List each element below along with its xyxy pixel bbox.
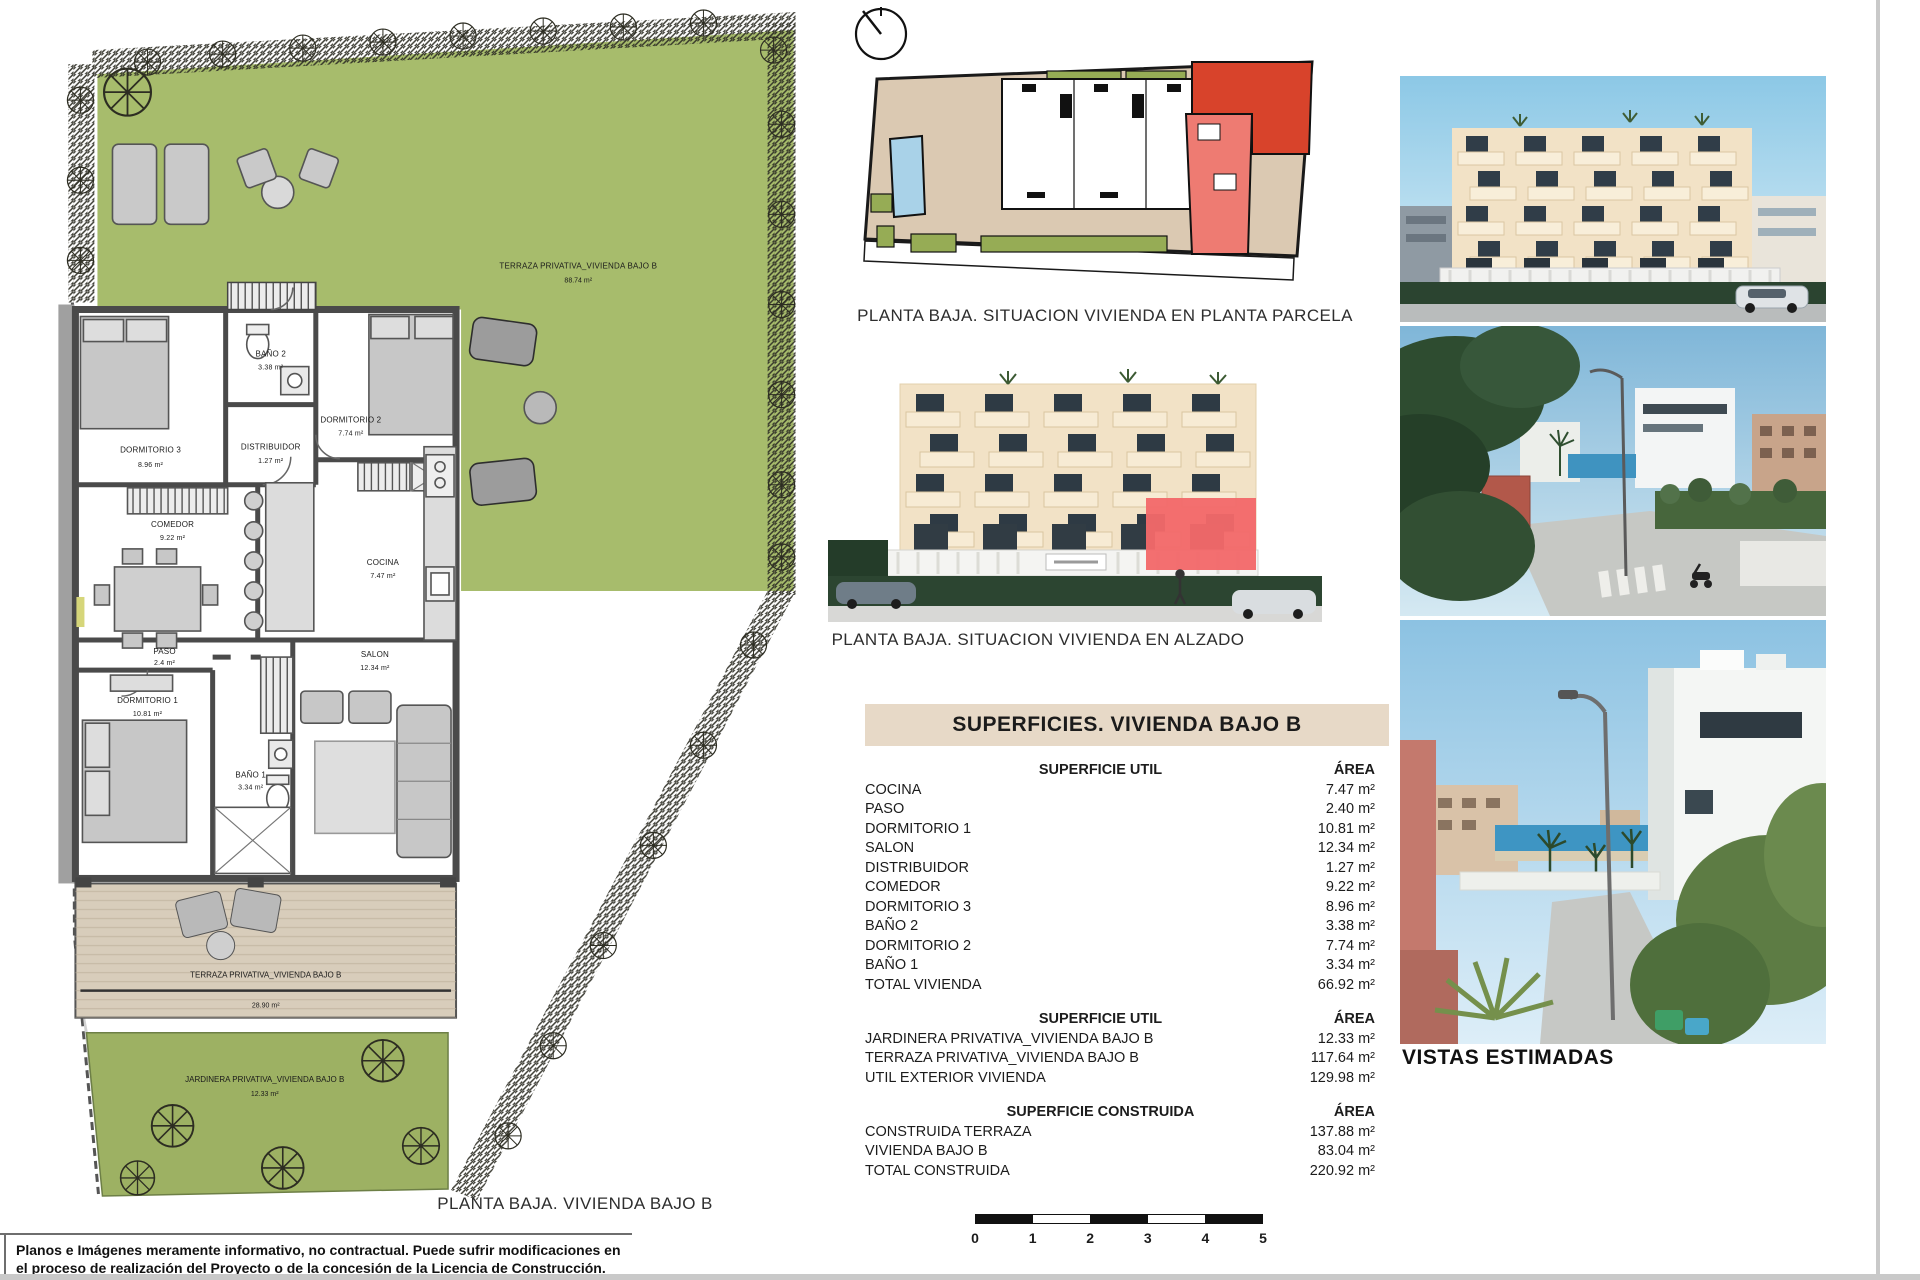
scale-segment xyxy=(976,1215,1033,1223)
svg-text:7.74 m²: 7.74 m² xyxy=(338,431,364,438)
views-label: VISTAS ESTIMADAS xyxy=(1402,1046,1614,1070)
table-row: CONSTRUIDA TERRAZA137.88 m² xyxy=(865,1123,1389,1143)
table-section: SUPERFICIE UTILÁREACOCINA7.47 m²PASO2.40… xyxy=(865,761,1389,995)
svg-text:2.4 m²: 2.4 m² xyxy=(154,660,176,667)
table-row: COMEDOR9.22 m² xyxy=(865,878,1389,898)
svg-text:BAÑO 1: BAÑO 1 xyxy=(235,770,266,779)
scale-tick-label: 2 xyxy=(1086,1230,1094,1246)
svg-text:1.27 m²: 1.27 m² xyxy=(258,458,284,465)
footer-divider xyxy=(0,1233,632,1235)
site-plan xyxy=(862,54,1344,306)
svg-text:12.34 m²: 12.34 m² xyxy=(360,665,390,672)
scale-segment xyxy=(1205,1215,1262,1223)
svg-text:3.34 m²: 3.34 m² xyxy=(238,784,264,791)
svg-text:3.38 m²: 3.38 m² xyxy=(258,365,284,372)
svg-text:COMEDOR: COMEDOR xyxy=(151,520,194,529)
terrace-label: TERRAZA PRIVATIVA_VIVIENDA BAJO B xyxy=(190,971,341,980)
site-units xyxy=(1002,79,1217,209)
site-plan-caption: PLANTA BAJA. SITUACION VIVIENDA EN PLANT… xyxy=(855,306,1355,326)
svg-text:DORMITORIO 3: DORMITORIO 3 xyxy=(120,446,181,455)
pool xyxy=(890,136,925,217)
scale-tick-label: 0 xyxy=(971,1230,979,1246)
jardinera-area: JARDINERA PRIVATIVA_VIVIENDA BAJO B 12.3… xyxy=(86,1033,448,1196)
disclaimer: Planos e Imágenes meramente informativo,… xyxy=(16,1241,621,1278)
photo-sea-view xyxy=(1400,620,1826,1044)
surfaces-table: SUPERFICIES. VIVIENDA BAJO B SUPERFICIE … xyxy=(865,704,1389,1181)
table-row: DORMITORIO 27.74 m² xyxy=(865,937,1389,957)
jardinera-area-value: 12.33 m² xyxy=(251,1091,279,1098)
table-row: PASO2.40 m² xyxy=(865,800,1389,820)
page-edge-bottom xyxy=(0,1274,1920,1280)
photo-building-render xyxy=(1400,76,1826,322)
garden-label: TERRAZA PRIVATIVA_VIVIENDA BAJO B xyxy=(499,261,657,270)
table-row: DORMITORIO 110.81 m² xyxy=(865,820,1389,840)
floor-plan: TERRAZA PRIVATIVA_VIVIENDA BAJO B 88.74 … xyxy=(52,4,804,1216)
elevation-caption: PLANTA BAJA. SITUACION VIVIENDA EN ALZAD… xyxy=(828,630,1248,650)
table-row: SALON12.34 m² xyxy=(865,839,1389,859)
floor-plan-caption: PLANTA BAJA. VIVIENDA BAJO B xyxy=(420,1194,730,1214)
table-row: BAÑO 23.38 m² xyxy=(865,917,1389,937)
scale-segment xyxy=(1033,1215,1090,1223)
page-edge-right xyxy=(1876,0,1880,1280)
garden-area-value: 88.74 m² xyxy=(564,277,592,284)
disclaimer-line-1: Planos e Imágenes meramente informativo,… xyxy=(16,1241,621,1259)
table-section-header: SUPERFICIE CONSTRUIDAÁREA xyxy=(865,1103,1389,1123)
table-row: JARDINERA PRIVATIVA_VIVIENDA BAJO B12.33… xyxy=(865,1030,1389,1050)
table-row: DORMITORIO 38.96 m² xyxy=(865,898,1389,918)
table-section-header: SUPERFICIE UTILÁREA xyxy=(865,1010,1389,1030)
terrace-area: TERRAZA PRIVATIVA_VIVIENDA BAJO B 28.90 … xyxy=(75,877,456,1017)
table-section: SUPERFICIE UTILÁREAJARDINERA PRIVATIVA_V… xyxy=(865,1010,1389,1088)
svg-text:PASO: PASO xyxy=(153,647,175,656)
scale-tick-label: 5 xyxy=(1259,1230,1267,1246)
table-row: UTIL EXTERIOR VIVIENDA129.98 m² xyxy=(865,1069,1389,1089)
table-row: TOTAL CONSTRUIDA220.92 m² xyxy=(865,1162,1389,1182)
surfaces-table-title: SUPERFICIES. VIVIENDA BAJO B xyxy=(865,704,1389,746)
terrace-area-value: 28.90 m² xyxy=(252,1003,280,1010)
svg-text:9.22 m²: 9.22 m² xyxy=(160,535,186,542)
scale-tick-label: 4 xyxy=(1201,1230,1209,1246)
svg-text:DISTRIBUIDOR: DISTRIBUIDOR xyxy=(241,443,301,452)
scale-bar: 012345 xyxy=(975,1214,1263,1250)
scale-segment xyxy=(1090,1215,1147,1223)
svg-text:DORMITORIO 1: DORMITORIO 1 xyxy=(117,696,178,705)
table-section-header: SUPERFICIE UTILÁREA xyxy=(865,761,1389,781)
svg-text:COCINA: COCINA xyxy=(367,558,400,567)
scale-tick-label: 1 xyxy=(1029,1230,1037,1246)
table-row: BAÑO 13.34 m² xyxy=(865,956,1389,976)
photo-street-view xyxy=(1400,326,1826,616)
table-row: TOTAL VIVIENDA66.92 m² xyxy=(865,976,1389,996)
table-row: DISTRIBUIDOR1.27 m² xyxy=(865,859,1389,879)
table-row: TERRAZA PRIVATIVA_VIVIENDA BAJO B117.64 … xyxy=(865,1049,1389,1069)
table-row: COCINA7.47 m² xyxy=(865,781,1389,801)
svg-text:BAÑO 2: BAÑO 2 xyxy=(255,350,286,359)
scale-tick-label: 3 xyxy=(1144,1230,1152,1246)
entry-porch xyxy=(228,282,316,309)
footer-left-rule xyxy=(4,1233,6,1280)
elevation-highlight xyxy=(1146,498,1256,570)
svg-text:DORMITORIO 2: DORMITORIO 2 xyxy=(320,416,381,425)
svg-text:10.81 m²: 10.81 m² xyxy=(133,711,163,718)
svg-text:7.47 m²: 7.47 m² xyxy=(370,573,396,580)
svg-text:SALON: SALON xyxy=(361,650,389,659)
table-section: SUPERFICIE CONSTRUIDAÁREACONSTRUIDA TERR… xyxy=(865,1103,1389,1181)
scale-segment xyxy=(1148,1215,1205,1223)
table-row: VIVIENDA BAJO B83.04 m² xyxy=(865,1142,1389,1162)
jardinera-label: JARDINERA PRIVATIVA_VIVIENDA BAJO B xyxy=(185,1075,344,1084)
elevation-render xyxy=(828,350,1322,622)
svg-text:8.96 m²: 8.96 m² xyxy=(138,462,164,469)
